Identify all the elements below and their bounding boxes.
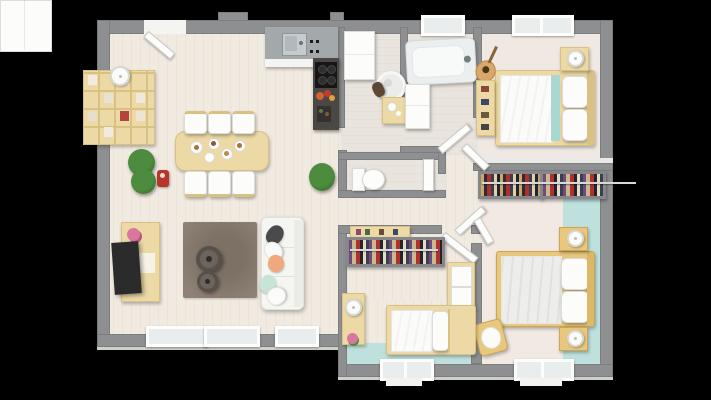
window-sill-bedroom2	[520, 379, 562, 386]
bed2-pillow	[561, 291, 589, 323]
hanging-clothes	[543, 174, 603, 196]
kitchen-sink	[282, 33, 307, 56]
cooktop	[315, 62, 337, 88]
plant-large-2	[131, 169, 156, 194]
table-center	[206, 256, 212, 262]
bedroom3-wardrobe-rack	[346, 237, 445, 267]
bedroom3-wardrobe	[447, 262, 475, 310]
cabinet-seam	[24, 0, 25, 50]
books	[120, 111, 129, 121]
dining-table	[175, 131, 269, 171]
bottle	[325, 112, 329, 116]
cushion-peach	[266, 253, 286, 274]
bed1-pillow	[562, 109, 588, 141]
bath-cabinet	[344, 31, 375, 80]
basin-bowl	[384, 79, 392, 87]
bedroom3-desk-lamp	[345, 299, 362, 316]
cart-detail	[160, 173, 165, 178]
bedroom1-lamp	[567, 50, 584, 67]
wall-bedroom1-south	[473, 163, 613, 171]
shelf-book	[481, 99, 489, 105]
hob-knob	[316, 50, 319, 53]
coffee-table-small	[197, 271, 218, 292]
chair-cushion	[479, 325, 504, 351]
plate	[204, 152, 215, 163]
dining-chair	[232, 171, 255, 197]
hob-knob	[310, 50, 313, 53]
hob-knob	[316, 40, 319, 43]
shelf-book	[393, 229, 398, 235]
plate	[234, 140, 246, 152]
bedroom2-bed	[496, 251, 595, 327]
window-living-1	[146, 326, 208, 347]
shelf-book	[481, 124, 489, 130]
flower-orange	[316, 92, 324, 100]
burner	[327, 76, 336, 85]
tub-basin	[411, 45, 466, 79]
window-mullion	[404, 362, 407, 378]
bathtub	[405, 37, 477, 86]
bed3-duvet	[391, 310, 433, 352]
wardrobe-rack-2	[540, 171, 606, 199]
bed1-headboard	[587, 71, 594, 145]
bedroom1-shelf	[476, 80, 495, 136]
wardrobe-rack-1	[478, 171, 543, 199]
toilet-bowl	[362, 169, 385, 190]
shower-cabinet	[405, 84, 430, 129]
hanging-clothes	[481, 174, 540, 196]
window-living-2	[204, 326, 260, 347]
vanity-item	[396, 111, 401, 116]
plant-small	[309, 163, 335, 191]
red-cart	[157, 170, 169, 187]
food	[224, 151, 229, 156]
wall-wc-south	[338, 190, 446, 198]
shelf-book	[365, 229, 370, 235]
floor-plan-stage	[0, 0, 711, 400]
bottle	[319, 109, 323, 113]
wardrobe-door	[451, 266, 472, 287]
bed2-pillow	[561, 258, 589, 290]
sofa-backrest	[294, 220, 303, 307]
sink-faucet	[299, 41, 303, 45]
food	[237, 143, 242, 148]
dining-chair	[208, 171, 231, 197]
wc-door	[423, 159, 434, 191]
wall-wc-east	[438, 152, 446, 174]
books	[88, 111, 97, 121]
dining-chair	[208, 111, 231, 134]
tub-faucet	[464, 55, 471, 62]
pink-flowers	[127, 228, 140, 241]
bed1-duvet	[500, 75, 553, 143]
clothes-rail	[482, 182, 636, 184]
bedroom3-rail	[350, 249, 438, 251]
kitchen-tall-cabinet	[0, 0, 52, 52]
hob-knob	[310, 40, 313, 43]
window-sill-bedroom3	[386, 379, 422, 386]
shelf-book	[356, 229, 361, 235]
bedroom3-bed	[386, 305, 476, 355]
shelf-lamp	[110, 66, 130, 86]
books	[88, 75, 97, 85]
books	[104, 93, 113, 103]
wood-vanity	[382, 97, 406, 124]
food	[211, 141, 216, 146]
bed2-headboard	[587, 252, 594, 326]
hanging-clothes	[349, 240, 442, 264]
window-bedroom1-north	[512, 15, 574, 36]
plate	[221, 148, 233, 160]
cabinet-seam	[406, 105, 429, 106]
guitar-neck	[488, 46, 498, 64]
burner	[327, 65, 336, 74]
burner	[318, 76, 327, 85]
wall-tab-1	[218, 12, 248, 21]
sofa	[261, 217, 304, 310]
coffee-table-large	[196, 246, 222, 272]
bedroom2-lamp-bottom	[567, 330, 584, 347]
bottle-shelf	[317, 106, 331, 122]
bed3-footboard	[448, 309, 474, 351]
shelf-book	[481, 112, 489, 118]
window-mullion	[540, 18, 543, 33]
tv	[111, 241, 142, 295]
window-bedroom2-south	[514, 359, 574, 381]
plate	[208, 138, 220, 150]
window-bedroom3-south	[380, 359, 434, 381]
books	[136, 111, 145, 121]
dining-chair	[232, 111, 255, 134]
flower-yellow	[329, 95, 335, 101]
bed2-duvet	[501, 256, 562, 324]
books	[136, 93, 145, 103]
dining-chair	[184, 171, 207, 197]
shelf-book	[481, 86, 489, 92]
bed3-pillow	[432, 311, 449, 351]
bedroom1-bed	[495, 70, 595, 146]
books	[104, 127, 113, 137]
food	[194, 145, 199, 150]
window-living-3	[275, 326, 319, 347]
sink-basin	[285, 36, 297, 51]
plate	[190, 141, 203, 154]
vanity-sink	[387, 102, 397, 112]
shelf-book	[379, 229, 384, 235]
bedroom3-flowers	[347, 333, 358, 344]
bed1-teal-stripe	[551, 75, 560, 141]
bed1-pillow	[562, 76, 588, 108]
bedroom2-lamp-top	[567, 230, 584, 247]
table-center	[205, 279, 210, 284]
window-mullion	[541, 362, 544, 378]
burner	[318, 65, 327, 74]
window-shower-north	[421, 15, 465, 36]
kitchen-hob-column	[313, 58, 339, 130]
wall-tab-2	[330, 12, 344, 21]
dining-chair	[184, 111, 207, 134]
cabinet-seam	[345, 54, 374, 55]
toilet	[352, 167, 385, 190]
